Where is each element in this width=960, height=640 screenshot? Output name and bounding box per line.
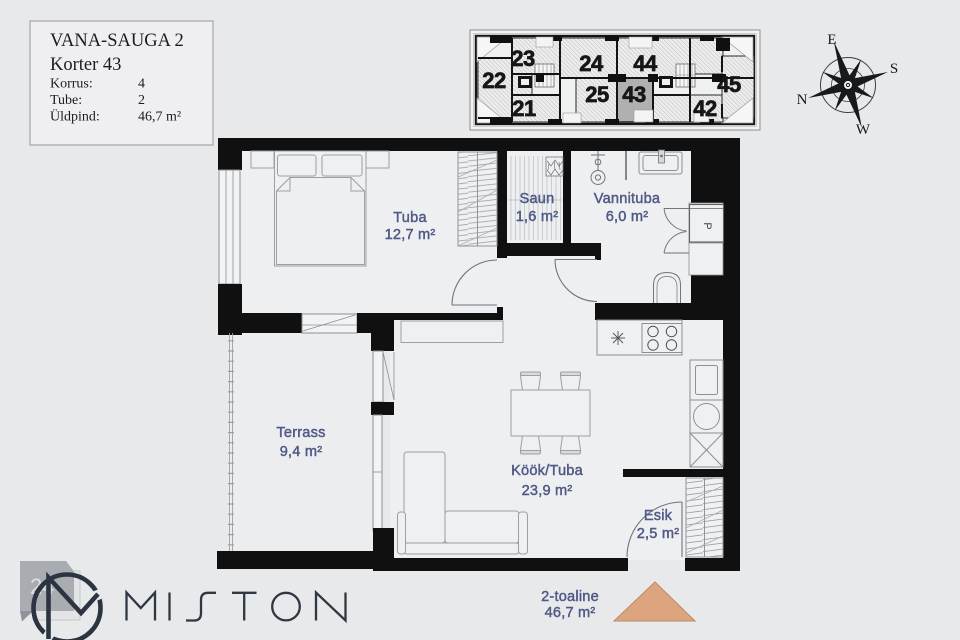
svg-text:2: 2 — [138, 93, 145, 108]
svg-text:25: 25 — [585, 82, 609, 107]
svg-text:6,0 m²: 6,0 m² — [606, 209, 649, 225]
svg-text:23: 23 — [511, 46, 535, 71]
svg-text:46,7 m²: 46,7 m² — [545, 605, 596, 621]
svg-text:Terrass: Terrass — [276, 425, 325, 441]
svg-text:S: S — [890, 61, 898, 77]
svg-text:45: 45 — [717, 72, 741, 97]
svg-text:VANA-SAUGA 2: VANA-SAUGA 2 — [50, 31, 184, 51]
svg-text:Korter 43: Korter 43 — [50, 55, 121, 75]
svg-text:22: 22 — [482, 68, 506, 93]
svg-text:Tube:: Tube: — [50, 93, 82, 108]
svg-text:24: 24 — [579, 51, 604, 76]
svg-text:2,5 m²: 2,5 m² — [637, 526, 680, 542]
svg-text:Vannituba: Vannituba — [594, 191, 661, 207]
svg-text:Esik: Esik — [644, 508, 673, 524]
svg-text:Saun: Saun — [520, 191, 555, 207]
svg-text:9,4 m²: 9,4 m² — [280, 444, 323, 460]
svg-text:Tuba: Tuba — [393, 210, 427, 226]
svg-text:43: 43 — [622, 82, 646, 107]
svg-text:2-toaline: 2-toaline — [541, 589, 599, 605]
svg-text:Üldpind:: Üldpind: — [50, 108, 100, 125]
svg-text:44: 44 — [633, 51, 658, 76]
svg-text:E: E — [827, 32, 836, 48]
svg-text:Korrus:: Korrus: — [50, 77, 93, 92]
svg-text:N: N — [797, 92, 808, 108]
svg-text:4: 4 — [138, 77, 145, 92]
svg-text:1,6 m²: 1,6 m² — [516, 209, 559, 225]
svg-text:21: 21 — [512, 96, 536, 121]
svg-text:42: 42 — [693, 96, 717, 121]
svg-text:P: P — [701, 222, 713, 229]
svg-text:46,7 m²: 46,7 m² — [138, 110, 181, 125]
svg-text:23,9 m²: 23,9 m² — [522, 483, 573, 499]
svg-text:12,7 m²: 12,7 m² — [385, 227, 436, 243]
svg-text:W: W — [856, 122, 871, 138]
svg-text:Köök/Tuba: Köök/Tuba — [511, 463, 584, 479]
